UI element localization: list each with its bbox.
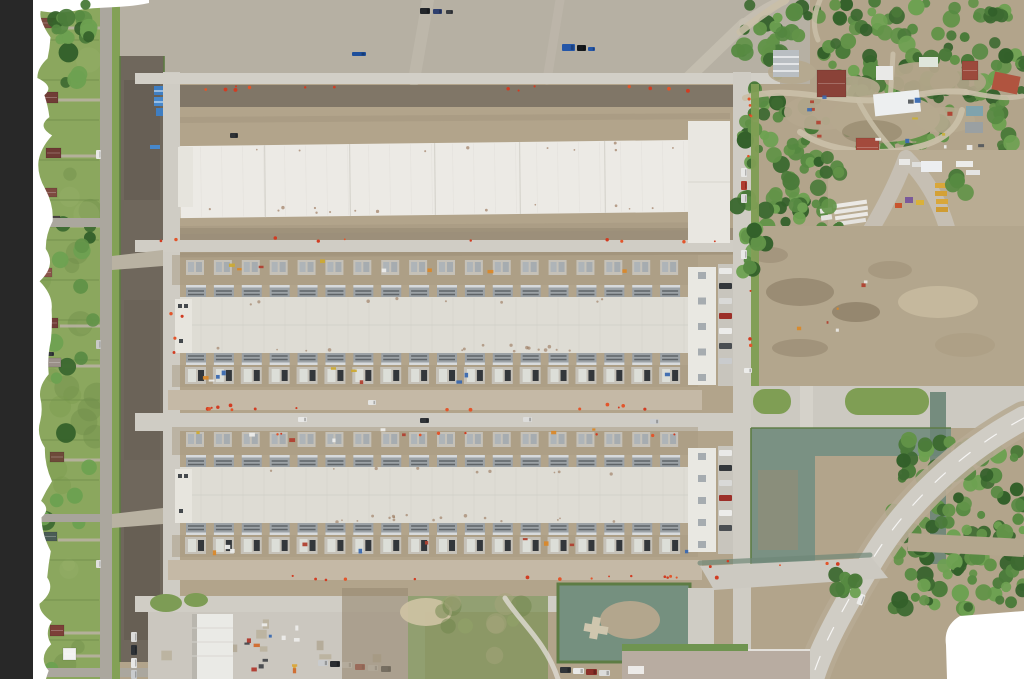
cone-line (344, 238, 346, 240)
dock-door (533, 540, 539, 551)
vent-cap (437, 285, 457, 288)
verge-strip (112, 0, 120, 679)
rooftop-unit (698, 519, 706, 526)
cone-line (235, 85, 237, 87)
cone-line (160, 240, 163, 243)
air-handler-unit (188, 539, 196, 552)
rooftop-unit (300, 434, 306, 444)
tree-canopy (56, 423, 76, 443)
cone-line (181, 315, 184, 318)
vent-cap (409, 363, 429, 366)
cone-line (676, 577, 678, 579)
vent-cap (660, 533, 680, 536)
vent-cap (186, 285, 206, 288)
rooftop-unit (634, 262, 640, 272)
tree-canopy (786, 4, 803, 21)
rooftop-unit (280, 262, 286, 272)
tree-canopy (821, 199, 837, 215)
road-b1-south (135, 240, 751, 252)
tree-canopy (833, 167, 844, 178)
rooftop-unit (447, 262, 453, 272)
roof-stain (257, 300, 260, 303)
tree-canopy (780, 217, 790, 227)
construction-machine (592, 428, 595, 430)
car-windshield (439, 10, 441, 14)
rooftop-unit (698, 272, 706, 279)
rooftop-unit (698, 475, 706, 482)
rooftop-unit (391, 262, 397, 272)
construction-machine (289, 438, 295, 442)
tree-canopy (821, 151, 834, 164)
parked-car (719, 313, 732, 319)
car-windshield (99, 151, 100, 157)
car-windshield (135, 634, 136, 641)
rooftop-unit (391, 434, 397, 444)
dock-door (588, 540, 594, 551)
roof-stain (476, 471, 479, 474)
rooftop-unit (475, 262, 481, 272)
cone-line (748, 337, 752, 341)
rooftop-unit (531, 434, 537, 444)
roof-stain (276, 349, 278, 351)
dock-door (282, 370, 288, 381)
cone-line (274, 236, 278, 240)
rooftop-unit (523, 434, 529, 444)
roof-stain (509, 344, 512, 347)
south-building (622, 650, 810, 679)
roof-stain (464, 514, 468, 518)
green-island (184, 593, 208, 607)
vent-cap (353, 533, 373, 536)
tree-canopy (51, 372, 62, 383)
roof-stain (392, 515, 395, 518)
cone-line (325, 579, 328, 582)
vent-cap (576, 285, 596, 288)
farm-yard-items (817, 135, 821, 138)
vent-cap (576, 455, 596, 458)
farm-yard-items (944, 145, 947, 148)
tree-canopy (998, 48, 1013, 63)
tree-canopy (991, 486, 1004, 499)
roof-stain (393, 519, 396, 522)
spoil-mound (868, 261, 912, 279)
car-windshield (304, 418, 306, 422)
tree-canopy (803, 11, 812, 20)
tree-canopy (862, 49, 877, 64)
vent-cap (465, 533, 485, 536)
air-handler-unit (216, 539, 224, 552)
tree-canopy (1010, 453, 1018, 461)
tree-canopy (73, 279, 88, 294)
staging-equipment (282, 636, 286, 640)
vent-cap (576, 363, 596, 366)
cone-line (620, 240, 623, 243)
tree-canopy (917, 579, 930, 592)
cone-line (643, 408, 646, 411)
rooftop-unit (634, 434, 640, 444)
cone-line (533, 85, 535, 87)
crosswalk (800, 386, 813, 428)
dock-door (533, 370, 539, 381)
tree-canopy (896, 453, 910, 467)
tree-canopy (942, 504, 955, 517)
cone-line (727, 560, 730, 563)
cone-line (173, 351, 176, 354)
vent-cap (632, 285, 652, 288)
farm-yard-items (912, 117, 918, 119)
car-windshield (745, 169, 746, 175)
trench-dark-2 (124, 300, 160, 460)
cone-line (464, 432, 466, 434)
dock-door (254, 370, 260, 381)
tree-canopy (848, 573, 863, 588)
dock-door (672, 370, 678, 381)
car-windshield (580, 669, 582, 673)
parking-lane (718, 264, 733, 386)
cone-line (414, 578, 416, 580)
weed-mottle (458, 618, 473, 633)
car-windshield (235, 134, 237, 138)
south-dirt-dark (342, 588, 408, 679)
air-handler-unit (188, 369, 196, 382)
construction-machine (360, 380, 363, 384)
rooftop-unit (662, 262, 668, 272)
tree-canopy (919, 451, 930, 462)
dock-door (198, 540, 204, 551)
vent-cap (493, 285, 513, 288)
rooftop-unit (188, 434, 194, 444)
tree-canopy (961, 525, 971, 535)
farm-yard-items (967, 145, 973, 150)
cone-line (630, 575, 632, 577)
roof-stain (432, 519, 435, 522)
dock-door (282, 540, 288, 551)
air-handler-unit (244, 539, 252, 552)
vent-cap (298, 533, 318, 536)
tree-canopy (848, 65, 860, 77)
vent-cap (381, 533, 401, 536)
cone-line (173, 337, 176, 340)
rooftop-unit (335, 262, 341, 272)
east-boulevard (751, 386, 1024, 428)
tree-canopy (931, 27, 945, 41)
farm-yard-items (810, 100, 814, 103)
rooftop-unit (467, 262, 473, 272)
rooftop-unit (503, 262, 509, 272)
farm-yard-items (816, 121, 821, 125)
tree-canopy (891, 7, 902, 18)
vent-cap (298, 285, 318, 288)
dock-door (644, 540, 650, 551)
rooftop-unit (670, 434, 676, 444)
white-truck (899, 159, 910, 165)
dock-door (505, 540, 511, 551)
car-windshield (325, 661, 327, 665)
parked-car (719, 450, 732, 456)
air-handler-unit (300, 369, 308, 382)
air-handler-unit (578, 369, 586, 382)
parked-car (719, 465, 732, 471)
dock-door (421, 370, 427, 381)
staging-dirt (317, 641, 324, 650)
weed-mottle (441, 618, 456, 633)
tree-canopy (935, 516, 948, 529)
rooftop-unit (272, 434, 278, 444)
parked-car (719, 525, 732, 531)
rooftop-unit (252, 262, 258, 272)
vent-cap (353, 455, 373, 458)
rooftop-unit (670, 262, 676, 272)
vent-cap (521, 533, 541, 536)
farm-yard-items (822, 95, 826, 99)
cone-line (621, 404, 625, 408)
rooftop-unit (355, 434, 361, 444)
vent-cap (604, 533, 624, 536)
tree-canopy (771, 97, 783, 109)
dock-door (449, 540, 455, 551)
car-windshield (135, 660, 136, 667)
lawn-mottle (63, 167, 76, 180)
tree-canopy (58, 9, 76, 27)
air-handler-unit (606, 369, 614, 382)
roof-stain (341, 519, 343, 521)
rooftop-unit (523, 262, 529, 272)
roof-stain (613, 520, 616, 523)
cone-line (715, 576, 719, 580)
w1-dirt-streak-2 (180, 226, 730, 230)
rooftop-unit (551, 434, 557, 444)
air-handler-unit (634, 369, 642, 382)
dock-door (393, 370, 399, 381)
roof-hatch (179, 509, 183, 513)
rooftop-unit (698, 453, 706, 460)
lawn-mottle (59, 187, 80, 208)
cone-line (578, 407, 581, 410)
warehouse-2-zone (168, 255, 733, 410)
parked-car (719, 480, 732, 486)
tree-canopy (74, 352, 87, 365)
rooftop-unit (606, 262, 612, 272)
white-truck (912, 162, 921, 167)
vent-cap (381, 363, 401, 366)
vent-cap (549, 455, 569, 458)
roof-stain (554, 472, 556, 474)
tree-canopy (52, 251, 69, 268)
air-handler-unit (411, 369, 419, 382)
lawn-mottle (49, 396, 71, 418)
car-windshield (745, 251, 746, 257)
vent-cap (409, 285, 429, 288)
site-trailer (628, 666, 644, 674)
car-windshield (529, 418, 531, 422)
air-handler-unit (327, 539, 335, 552)
vent-cap (325, 363, 345, 366)
cone-line (605, 238, 608, 241)
parked-car (719, 495, 732, 501)
vent-cap (325, 533, 345, 536)
vent-cap (409, 455, 429, 458)
vent-cap (493, 533, 513, 536)
vent-cap (493, 363, 513, 366)
cone-line (518, 90, 520, 92)
car-windshield (99, 561, 100, 567)
rooftop-unit (335, 434, 341, 444)
lawn-mottle (59, 560, 78, 579)
parked-car (719, 358, 732, 364)
cone-line (526, 576, 530, 580)
machine (895, 203, 902, 208)
vent-cap (270, 533, 290, 536)
rooftop-unit (614, 262, 620, 272)
vent-cap (242, 533, 262, 536)
cone-line (648, 87, 652, 91)
car-windshield (337, 662, 339, 666)
staging-equipment (251, 667, 256, 671)
white-shed (876, 66, 893, 80)
tree-canopy (743, 260, 757, 274)
cone-line (749, 290, 751, 292)
cone-line (749, 114, 751, 116)
cone-line (682, 240, 685, 243)
tree-canopy (975, 584, 991, 600)
dock-door (310, 370, 316, 381)
car-windshield (656, 420, 658, 424)
rooftop-unit (698, 374, 706, 381)
roof-hatch (184, 304, 188, 308)
warehouse-west-section (175, 299, 192, 353)
farm-yard-items (807, 108, 812, 111)
car-windshield (135, 671, 136, 677)
white-trailer (966, 170, 980, 175)
tree-canopy (746, 223, 761, 238)
air-handler-unit (383, 539, 391, 552)
tree-canopy (74, 10, 85, 21)
machine (916, 200, 924, 205)
construction-machine (320, 259, 325, 263)
roof-stain (569, 349, 571, 351)
w1-dirt-streak-1 (180, 116, 730, 120)
left-panel (0, 0, 33, 679)
tree-canopy (877, 25, 893, 41)
tree-canopy (995, 595, 1004, 604)
rooftop-unit (308, 434, 314, 444)
cone-line (174, 238, 177, 241)
car-windshield (571, 45, 574, 50)
staging-equipment (293, 668, 296, 673)
w1-dirt-streak-1 (180, 116, 730, 120)
parked-car (719, 510, 732, 516)
equipment (836, 329, 839, 332)
cone-line (825, 562, 828, 565)
cone-line (216, 405, 219, 408)
vent-cap (214, 455, 234, 458)
roof-stain (270, 470, 272, 472)
vent-cap (381, 285, 401, 288)
tree-canopy (757, 108, 770, 121)
staging-equipment (263, 659, 268, 662)
dirt-field (751, 226, 1024, 386)
vent-cap (632, 455, 652, 458)
air-handler-unit (383, 369, 391, 382)
air-handler-unit (634, 539, 642, 552)
vent-cap (521, 363, 541, 366)
dock-door (365, 540, 371, 551)
tree-canopy (891, 591, 908, 608)
dock-door (449, 370, 455, 381)
orthomosaic-viewer (0, 0, 1024, 679)
dock-door (226, 370, 232, 381)
rooftop-unit (578, 434, 584, 444)
cone-line (618, 407, 620, 409)
cone-line (714, 240, 716, 242)
tree-canopy (984, 559, 997, 572)
tree-canopy (793, 212, 806, 225)
dock-door (561, 370, 567, 381)
car-windshield (583, 46, 585, 50)
rooftop-unit (411, 262, 417, 272)
tree-canopy (80, 0, 90, 10)
construction-machine (222, 371, 226, 376)
car-windshield (745, 195, 746, 201)
gray-shed (965, 122, 983, 133)
teal-shed (966, 106, 983, 116)
spoil-mound (772, 339, 828, 357)
dock-door (505, 370, 511, 381)
construction-machine (302, 543, 307, 547)
north-road (135, 73, 780, 84)
vent-cap (660, 285, 680, 288)
tree-canopy (860, 24, 873, 37)
cone-line (229, 403, 233, 407)
roof-stain (558, 470, 561, 473)
roof-stain (388, 517, 390, 519)
rooftop-unit (495, 262, 501, 272)
vent-cap (214, 285, 234, 288)
construction-machine (229, 264, 235, 267)
construction-machine (487, 270, 493, 273)
vent-cap (270, 285, 290, 288)
loading-apron (168, 560, 702, 580)
vent-cap (381, 455, 401, 458)
tree-canopy (851, 9, 863, 21)
roof-stain (544, 348, 548, 352)
tree-canopy (731, 44, 745, 58)
roof-stain (601, 298, 603, 300)
tree-canopy (830, 38, 841, 49)
staging-equipment (294, 638, 300, 642)
car-windshield (52, 353, 53, 356)
rooftop-unit (411, 434, 417, 444)
tree-canopy (911, 593, 920, 602)
machine (905, 197, 913, 203)
tree-canopy (1003, 135, 1019, 151)
construction-machine (622, 269, 626, 273)
rooftop-unit (698, 541, 706, 548)
car-windshield (427, 9, 429, 13)
tree-canopy (905, 568, 918, 581)
dock-door (644, 370, 650, 381)
vent-cap (549, 533, 569, 536)
cone-line (506, 87, 510, 91)
weed-mottle (486, 647, 503, 664)
construction-machine (425, 541, 428, 544)
tree-canopy (775, 26, 790, 41)
roof-stain (371, 515, 374, 518)
rooftop-unit (272, 262, 278, 272)
cone-line (254, 408, 257, 411)
cone-line (663, 575, 666, 578)
roof-stain (500, 301, 503, 304)
